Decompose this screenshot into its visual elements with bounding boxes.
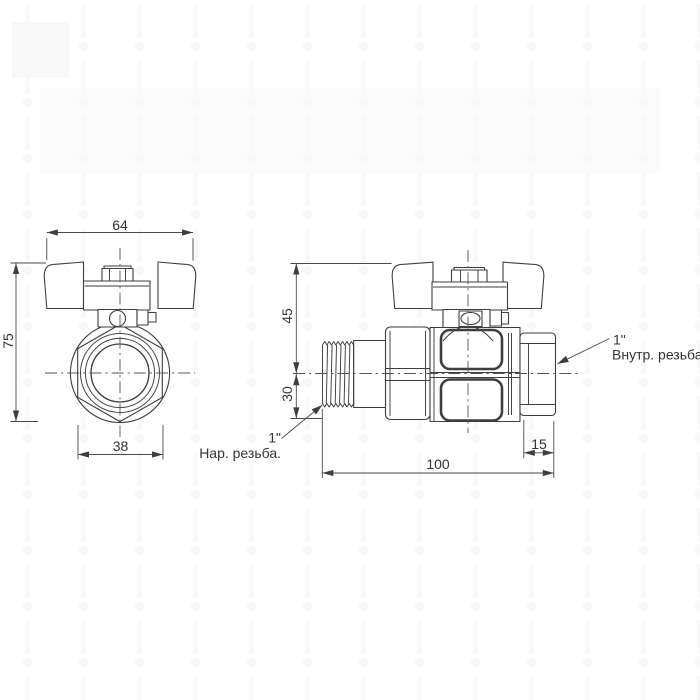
male-thread-size: 1" <box>268 430 281 446</box>
male-thread-text: Нар. резьба. <box>199 445 281 461</box>
side-body <box>430 328 520 422</box>
front-wing-left <box>44 262 83 309</box>
front-handle-hub <box>84 281 151 310</box>
front-packing-gland <box>98 310 156 328</box>
side-handle-hub <box>432 282 508 310</box>
female-hex-end <box>520 333 556 416</box>
dim-64-value: 64 <box>112 217 128 233</box>
side-wing-right <box>503 262 544 308</box>
front-stem-nut <box>102 269 133 282</box>
dim-100-value: 100 <box>426 456 450 472</box>
technical-drawing-page: 64 75 38 <box>0 0 700 700</box>
valve-drawing-svg: 64 75 38 <box>0 0 700 700</box>
front-wing-right <box>158 262 196 309</box>
dim-38-value: 38 <box>113 438 129 454</box>
side-stem-nut <box>452 270 488 282</box>
side-packing-gland <box>443 310 509 328</box>
side-wing-left <box>392 262 433 308</box>
female-thread-text: Внутр. резьба. <box>612 347 700 363</box>
dim-75-value: 75 <box>0 333 16 349</box>
dim-15-value: 15 <box>531 436 547 452</box>
dim-30-value: 30 <box>279 386 295 402</box>
female-thread-size: 1" <box>613 332 626 348</box>
dim-45-value: 45 <box>279 308 295 324</box>
